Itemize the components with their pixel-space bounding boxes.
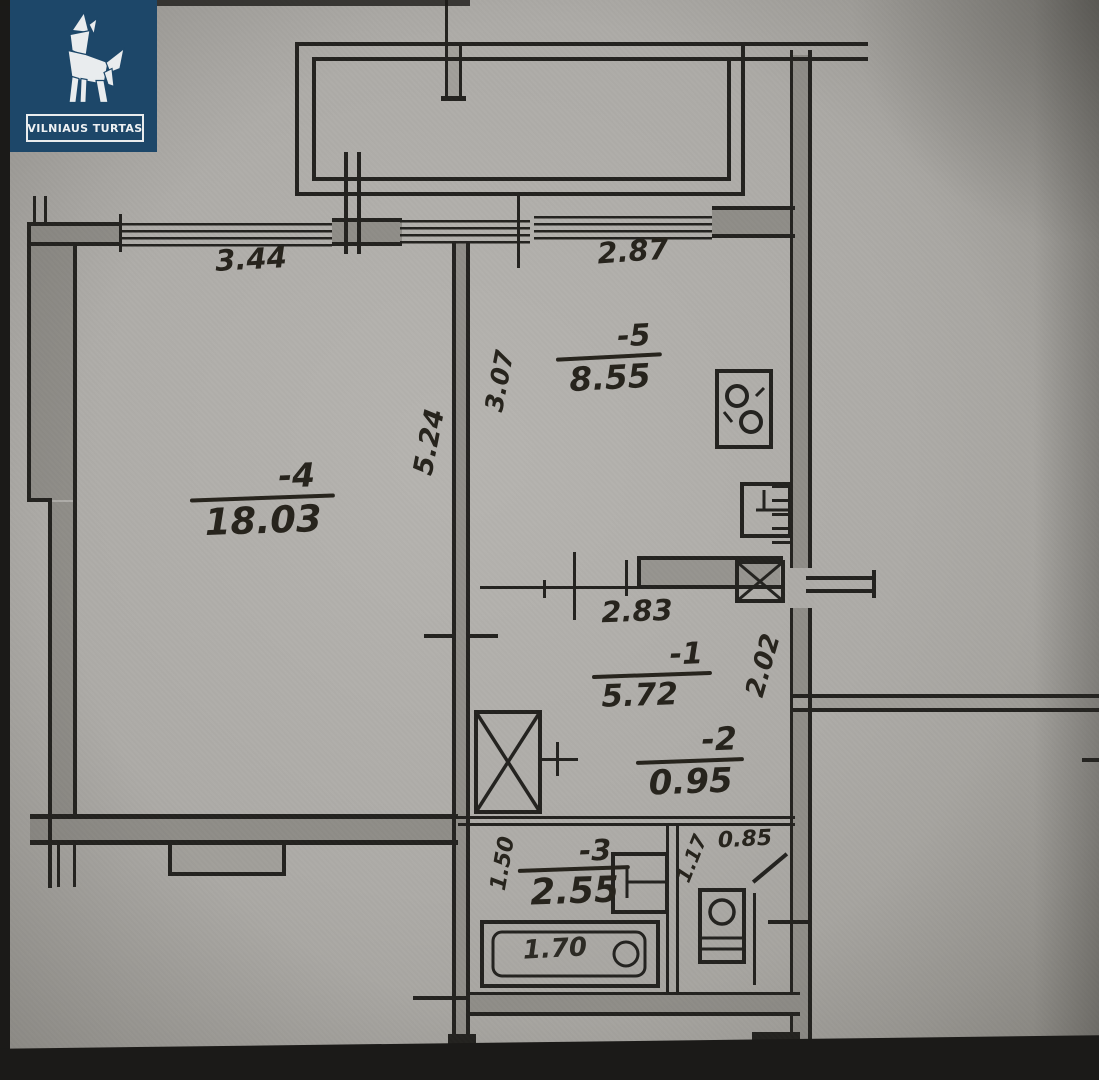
room-number: -3: [579, 835, 612, 867]
wall-tick: [768, 920, 810, 924]
wall-line: [727, 61, 731, 181]
entrance-door-opening: [788, 568, 814, 608]
wall-line: [741, 46, 745, 196]
wall-line: [452, 243, 456, 1042]
wc-door-leaf: [752, 852, 788, 883]
dimension-tick: [625, 560, 628, 596]
logo-wordmark: VILNIAUS TURTAS: [26, 114, 144, 142]
wall-line: [312, 57, 868, 61]
door-opening-dash: [424, 634, 452, 638]
dim-wc-width: 0.85: [709, 826, 780, 853]
dim-window-right: 2.87: [577, 232, 689, 270]
partition-line: [637, 556, 641, 589]
dim-bathtub-length: 1.70: [511, 934, 598, 966]
room-number: -2: [701, 722, 738, 757]
room-area: 8.55: [568, 358, 651, 397]
wall-line: [33, 196, 36, 226]
dim-hall-depth: 2.02: [739, 622, 788, 710]
dimension-tick: [119, 214, 122, 252]
toilet-icon: [698, 886, 746, 966]
closet-icon: [474, 710, 542, 814]
room-label-1: -1 5.72: [591, 638, 713, 713]
room-label-3: -3 2.55: [517, 834, 632, 913]
balcony-door-jamb: [344, 152, 348, 254]
dimension-line: [480, 586, 640, 589]
dim-room4-depth: 5.24: [408, 398, 452, 486]
dim-window-left: 3.44: [195, 241, 306, 277]
wall-tick: [1082, 758, 1099, 762]
wall-line: [295, 42, 868, 46]
wall-line: [312, 57, 316, 181]
dim-room5-depth: 3.07: [479, 337, 521, 424]
paper-grain: [0, 0, 1099, 1080]
room-area: 5.72: [601, 678, 679, 713]
wall-line: [445, 0, 448, 100]
wall-shading: [448, 46, 459, 98]
vent-hatch: [772, 541, 790, 544]
exterior-wall: [712, 206, 795, 238]
exterior-wall: [332, 218, 402, 246]
stove-icon: [714, 368, 774, 450]
room-label-5: -5 8.55: [554, 319, 664, 398]
room-label-4: -4 18.03: [189, 457, 337, 542]
wall-line: [295, 192, 745, 196]
wall-line: [466, 243, 470, 1042]
corridor-wall-line: [793, 708, 1099, 712]
wc-door-frame: [753, 893, 756, 985]
photo-vignette: [0, 0, 1099, 1080]
wall-line: [27, 222, 31, 502]
kitchen-sink-icon: [740, 482, 792, 538]
room-area: 0.95: [648, 763, 733, 802]
balcony-door-jamb: [357, 152, 361, 254]
wall-line: [44, 196, 47, 226]
room-number: -4: [278, 458, 316, 494]
wall-line: [790, 50, 793, 1042]
closet-tick: [556, 742, 559, 776]
entrance-door-leaf: [806, 589, 876, 593]
room-number: -5: [616, 320, 651, 353]
wall-shading: [793, 55, 808, 1040]
window-middle: [400, 220, 530, 244]
wall-line: [459, 46, 462, 100]
room-number: -1: [669, 638, 703, 671]
bottom-wall: [470, 992, 800, 1016]
corridor-wall-shading: [793, 698, 1099, 708]
origami-wolf-icon: [34, 8, 134, 108]
window-divider: [517, 192, 520, 268]
entrance-door-leaf: [872, 570, 876, 598]
wall-line: [458, 823, 795, 826]
wall-line: [808, 50, 812, 1042]
dim-hall-width: 2.83: [591, 594, 682, 628]
wall-line: [458, 816, 795, 819]
wall-line: [57, 845, 60, 887]
niche-line: [168, 872, 286, 876]
wall-line: [30, 840, 458, 845]
wall-shading: [30, 819, 458, 840]
room-label-2: -2 0.95: [635, 722, 746, 802]
wall-line: [441, 96, 466, 101]
wall-line: [312, 177, 731, 181]
room-area: 18.03: [204, 500, 322, 543]
flue-shaft-icon: [735, 560, 785, 603]
wall-shading: [52, 502, 73, 816]
photo-edge-left: [0, 0, 10, 1080]
wall-line: [30, 814, 458, 819]
photo-edge-bottom: [0, 1035, 1099, 1080]
door-jamb: [543, 580, 546, 598]
wall-shading: [31, 226, 73, 500]
dim-bath-depth: 1.50: [486, 827, 521, 900]
corridor-wall-line: [793, 694, 1099, 698]
wall-line: [48, 500, 52, 888]
entrance-door-leaf: [806, 576, 876, 580]
vilniaus-turtas-logo: VILNIAUS TURTAS: [10, 0, 157, 152]
wall-line: [676, 823, 679, 1003]
door-opening-dash: [470, 634, 498, 638]
dimension-tick: [573, 552, 576, 620]
scanned-floor-plan-photo: 3.44 2.87 -4 18.03 -5 8.55 5.24 3.07 2.8…: [0, 0, 1099, 1080]
wall-line: [73, 242, 77, 818]
wall-line: [295, 42, 299, 196]
wall-shading: [456, 243, 466, 1042]
wall-line: [73, 845, 76, 887]
room-area: 2.55: [530, 872, 620, 913]
wall-line: [413, 996, 471, 1000]
